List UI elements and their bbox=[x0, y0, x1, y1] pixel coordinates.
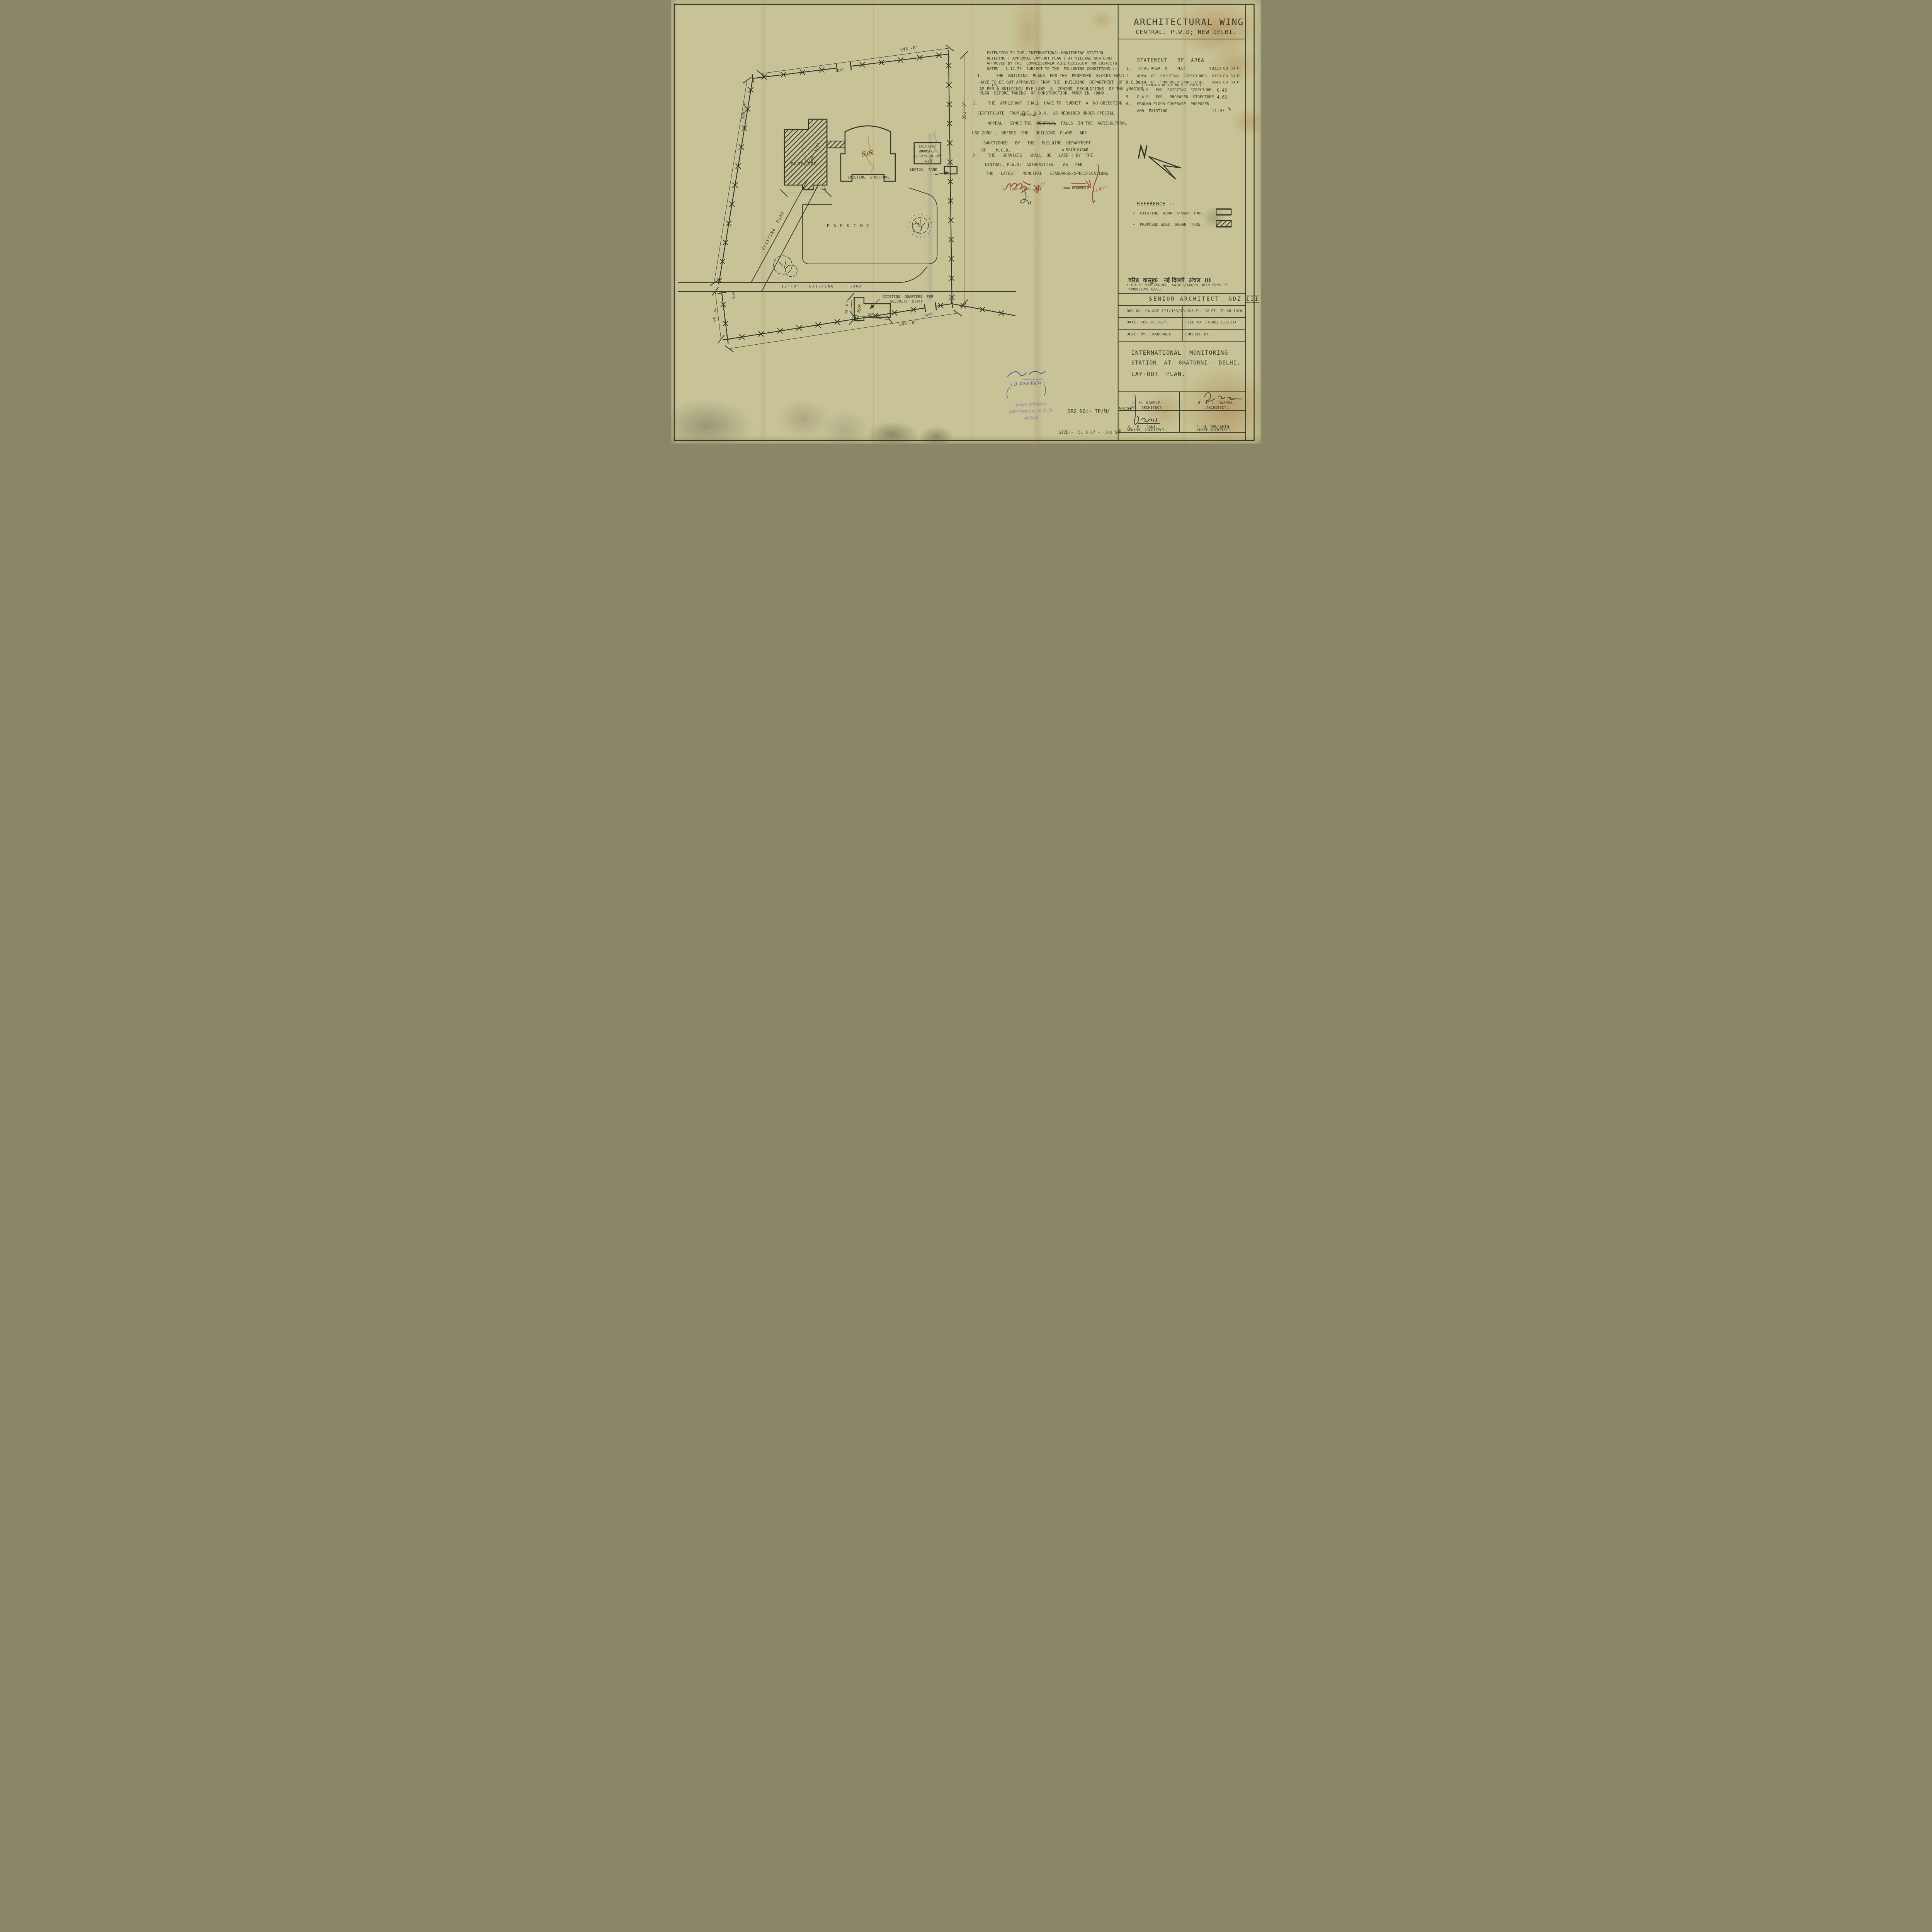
road-12-label: 12'-0" EXISTING ROAD bbox=[781, 285, 862, 289]
row-value: 6339.00 bbox=[1212, 75, 1228, 79]
signatory-name: M. M. L. SHARMA. bbox=[1197, 401, 1235, 406]
row-value: 4545.00 bbox=[1212, 81, 1228, 85]
quarters-label: EXISTING QUARTERS FOR bbox=[883, 295, 934, 299]
note-intro-line: APPROVED BY THE COMMISSIONER VIDE DECISI… bbox=[987, 62, 1119, 66]
condition-line-with-strike: APPEAL , SINCE THE PERPOSAL FALLS IN THE… bbox=[978, 117, 1127, 130]
condition-number: 2. bbox=[973, 101, 978, 105]
row-item: AREA OF EXISTING STRECTURES bbox=[1137, 75, 1207, 79]
row-item: TOTAL AREA OF PLOT. bbox=[1137, 67, 1188, 71]
line-prefix: APPEAL , SINCE THE bbox=[988, 121, 1036, 126]
row-no: 5 bbox=[1126, 95, 1128, 100]
diagonal-road-left-edge bbox=[751, 180, 808, 282]
row-item-sub: (EXTENSION OF THE MAIN BUILDING) bbox=[1142, 84, 1201, 87]
dealt-by-cell: DEALT BY. KAUSHALA. bbox=[1127, 333, 1173, 337]
roman-numeral: III bbox=[1246, 296, 1259, 303]
condition-line: PLAN BEFORE TAKING UP CONSTRUCTION WORK … bbox=[980, 92, 1109, 96]
tree bbox=[774, 256, 797, 277]
condition-line: THE BUILDING PLANS FOR THE PROPOSED BLOC… bbox=[996, 74, 1126, 78]
dim-57: 57'-1½" bbox=[812, 187, 828, 191]
condition-line: AS PER A BUILDING/ BYE-LAWS & ZONING REG… bbox=[980, 87, 1143, 91]
inserted-word: PROPOSAL bbox=[1020, 114, 1037, 117]
gate-label-left: GATE bbox=[731, 291, 735, 299]
row-item: GROUND FLOOR COVERAGE PROPOSED bbox=[1137, 102, 1209, 107]
legend-existing-swatch bbox=[1216, 209, 1231, 215]
senior-architect-label: SENIOR ARCHITECT NDZ bbox=[1149, 296, 1246, 302]
condition-number: 3. bbox=[973, 153, 978, 158]
signatory-name: V. H. KAMBLE. bbox=[1132, 401, 1162, 406]
file-no-cell: FILE NO SA-NDZ III/333 bbox=[1185, 321, 1236, 325]
reference-title: REFERENCE :- bbox=[1137, 202, 1175, 207]
row-unit: SQ.FT. bbox=[1231, 67, 1243, 71]
header-title: ARCHITECTURAL WING bbox=[1134, 18, 1244, 27]
condition-line: HAVE TO BE GOT APPROVED FROM THE BUILDIN… bbox=[980, 80, 1141, 85]
row-no: 1. bbox=[1126, 67, 1131, 71]
senior-architect-row: SENIOR ARCHITECT NDZ III bbox=[1131, 291, 1259, 308]
statement-title: STATEMENT OF AREA . bbox=[1137, 58, 1211, 63]
quarters-label: SECURITY STAFF. bbox=[890, 300, 925, 304]
signatory-role: ARCHITECT. bbox=[1206, 406, 1228, 410]
workshop-label: WORKSHOP bbox=[919, 150, 935, 153]
inserted-word: & MAINTAINED bbox=[1061, 148, 1088, 152]
condition-line: THE APPLICANT SHALL HAVE TO SUBMIT A NO … bbox=[988, 101, 1122, 105]
septic-tank-label: SEPTIC TANK bbox=[910, 168, 937, 172]
note-intro-line: BUILDING ( APPROVAL LAY-OUT PLAN ) AT VI… bbox=[987, 56, 1112, 61]
checked-by-cell: CHECKED BY. bbox=[1185, 333, 1211, 337]
drawing-title: INTERNATIONAL MONITORING bbox=[1131, 350, 1228, 356]
size-handwritten-2: m. bbox=[1119, 429, 1123, 433]
row-no: 4 bbox=[1126, 88, 1128, 93]
legend-proposed-label: • PROPOSED WORK SHOWN THUS . bbox=[1133, 223, 1205, 227]
ss-mark: S/S bbox=[924, 158, 933, 165]
drawing-title: STATION AT GHATORNI - DELHI. bbox=[1131, 361, 1241, 366]
row-unit: SQ.FT. bbox=[1231, 75, 1243, 78]
town-planner-signature bbox=[1071, 165, 1099, 203]
dim-351: 351'-0" bbox=[962, 102, 967, 119]
condition-line: THE SERVICES SHALL BE LAID ↑ BY THE bbox=[988, 153, 1093, 158]
note-intro-line: EXTENSION TO THE INTERNATIONAL MONITORIN… bbox=[987, 51, 1103, 56]
row-no: 6. bbox=[1126, 102, 1131, 107]
workshop-label: EXISTING bbox=[919, 145, 935, 148]
plot-boundary-fence bbox=[717, 50, 1015, 344]
legend-existing-label: • EXISTING WORK SHOWN THUS . bbox=[1133, 211, 1207, 216]
condition-line: THE LATEST MUNCIPAL STANDARDS/SPECIFICAT… bbox=[986, 172, 1108, 176]
drg-no-handwritten-2: 5520 bbox=[1119, 407, 1131, 412]
existing-structure-label: EXISTING STRECTURE bbox=[848, 176, 890, 180]
row-no: 2 bbox=[1126, 75, 1128, 79]
stamp-line: स्थापत्य अभियन्ता-१ bbox=[1015, 402, 1046, 408]
jr-town-planner-flourish bbox=[1020, 192, 1031, 204]
roads bbox=[678, 180, 1016, 291]
tree bbox=[909, 214, 932, 237]
row-value: 98332.00 bbox=[1209, 67, 1228, 71]
scale-cell: SCALE:- 32 FT. TO AN INCH. bbox=[1187, 310, 1245, 313]
traced-note: • TRACED FROM DRG.NO. SA(A)1/333/7R, WIT… bbox=[1127, 284, 1228, 287]
town-planner-label: TOWN PLANNER bbox=[1062, 187, 1086, 190]
link-corridor bbox=[827, 141, 845, 148]
row-unit: SQ.FT. bbox=[1231, 81, 1243, 85]
row-item: F.A.R FOR PROPOSED STRECTURE. bbox=[1137, 95, 1216, 100]
drg-no-handwritten: DRG NO:- TP/M/ bbox=[1068, 409, 1110, 415]
struck-word: PERPOSAL bbox=[1036, 121, 1056, 126]
hindi-title: वरिष्ठ वास्तुक नई दिल्ली अंचल III bbox=[1128, 277, 1211, 284]
drg-no-cell: DRG.NO. SA-NDZ III/333/7R₂ bbox=[1127, 310, 1187, 314]
keswani-parens bbox=[1007, 385, 1046, 398]
row-value: 4.62 bbox=[1217, 95, 1227, 100]
drawing-title: LAY-OUT PLAN. bbox=[1131, 371, 1185, 378]
condition-line: OF M.C.D. bbox=[981, 149, 1011, 153]
line-suffix: FALLS IN THE AGRICULTURAL bbox=[1056, 121, 1127, 126]
north-arrow-icon bbox=[1138, 145, 1181, 179]
header-subtitle: CENTRAL. P.W.D; NEW DELHI. bbox=[1136, 29, 1236, 36]
row-unit: % bbox=[1228, 107, 1231, 112]
row-value: 11.07 bbox=[1212, 109, 1225, 113]
row-no: 3 bbox=[1126, 81, 1128, 85]
drawing-sheet: ARCHITECTURAL WING CENTRAL. P.W.D; NEW D… bbox=[671, 0, 1261, 444]
signatory-role: CHIEF ARCHITECT. bbox=[1197, 429, 1233, 432]
sharma-signature bbox=[1204, 393, 1242, 401]
condition-line: CENTRAL. P.W.D; AUTHORITIES AS PER bbox=[985, 163, 1083, 167]
legend-proposed-swatch bbox=[1216, 221, 1231, 227]
condition-line: SANCTIONED BY THE BUILDING DEPARTMEMT bbox=[983, 141, 1091, 146]
row-item-sub: AND EXISTING bbox=[1137, 109, 1167, 114]
signatory-role: DY. ARCHITECT bbox=[1131, 406, 1162, 410]
dimension-lines bbox=[710, 45, 968, 352]
workshop-dim: 35'-0"X 29'-0" bbox=[913, 155, 941, 159]
signatory-role: SENIOR ARCHITECT. bbox=[1127, 429, 1167, 432]
septic-tank bbox=[935, 167, 957, 175]
condition-line: USE ZONE , BEFORE THE BUILDING PLANS ARE bbox=[972, 131, 1087, 136]
row-value: 6.45 bbox=[1217, 88, 1227, 93]
parking-label: P A R K I N G bbox=[827, 224, 870, 228]
size-handwritten: SIZE:- ·51 X·67 = ·341 SQ bbox=[1059, 430, 1120, 435]
note-intro-line: DATED . 1.12.76 SUBJECT TO THE FOLLOWING… bbox=[987, 67, 1117, 71]
condition-number: 1. bbox=[977, 74, 982, 78]
condition-line: CERTIFICATE FROM THE D.D.A. AS REQUIRED … bbox=[978, 111, 1114, 116]
date-cell: DATE: FEB.28.1977. bbox=[1127, 321, 1168, 325]
stamp-line: नई दिल्ली bbox=[1024, 417, 1038, 421]
row-item: F.A.R FOR EXISTING STRECTURE. bbox=[1137, 88, 1214, 93]
jr-town-planner-label: JR. TOWN PLANNER (L) bbox=[1002, 188, 1041, 192]
